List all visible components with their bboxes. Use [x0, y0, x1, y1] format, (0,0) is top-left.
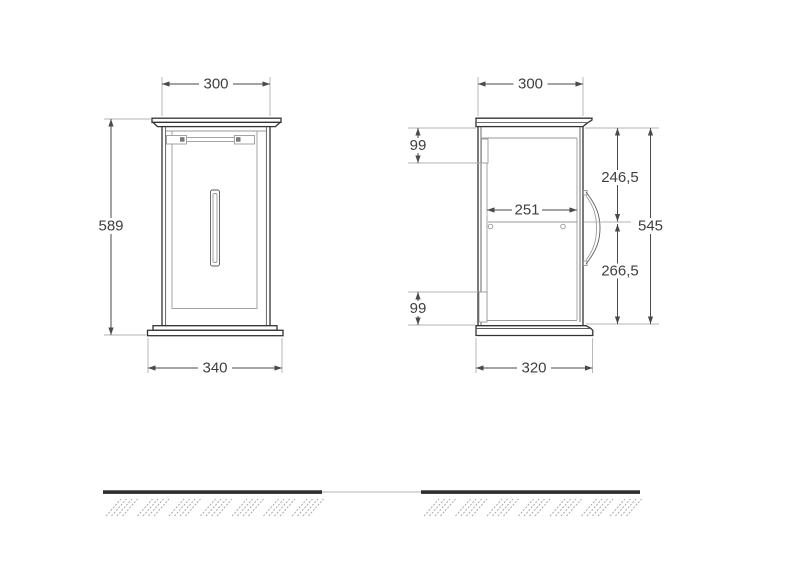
- side-body: [478, 127, 583, 326]
- dim-top-to-shelf-label: 246,5: [601, 169, 639, 186]
- hanging-bracket-right-screw: [236, 137, 241, 142]
- dim-side-depth-label: 300: [518, 76, 543, 93]
- dim-arrow: [275, 365, 283, 370]
- dim-arrow: [415, 318, 420, 326]
- dim-arrow: [585, 365, 593, 370]
- dim-arrow: [648, 317, 653, 325]
- front-view: [148, 118, 284, 335]
- dim-arrow: [615, 214, 620, 222]
- dim-arrow: [162, 81, 170, 86]
- dim-front-height-label: 589: [98, 218, 123, 235]
- hanging-bracket-left-screw: [180, 137, 185, 142]
- dim-hang-top-label: 99: [410, 137, 427, 154]
- dim-front-width-label: 300: [203, 76, 228, 93]
- dim-arrow: [415, 292, 420, 300]
- cabinet-drawing: 300 589 340: [0, 0, 800, 581]
- dim-shelf-to-bottom-label: 266,5: [601, 263, 639, 280]
- dim-arrow: [576, 81, 584, 86]
- side-hang-rail-top: [482, 139, 489, 163]
- front-body: [162, 127, 270, 326]
- dim-arrow: [615, 128, 620, 136]
- shelf-pin-right: [561, 224, 566, 229]
- dim-arrow: [478, 81, 486, 86]
- ground-hatch-left: [106, 499, 324, 516]
- dim-side-base-depth-label: 320: [521, 360, 546, 377]
- dim-arrow: [476, 365, 484, 370]
- ground-hatch-right: [424, 499, 642, 516]
- dim-front-base-width-label: 340: [202, 360, 227, 377]
- dim-arrow: [263, 81, 271, 86]
- dim-side-height-label: 545: [638, 218, 663, 235]
- dim-arrow: [148, 365, 156, 370]
- ground-line-right: [421, 490, 640, 494]
- dim-hang-bottom-label: 99: [410, 300, 427, 317]
- dim-arrow: [648, 128, 653, 136]
- dim-arrow: [415, 156, 420, 164]
- ground-line-left: [103, 490, 322, 494]
- dim-shelf-depth-label: 251: [514, 202, 539, 219]
- technical-drawing-canvas: 300 589 340: [0, 0, 800, 581]
- dim-arrow: [615, 224, 620, 232]
- side-base: [476, 326, 593, 336]
- dim-arrow: [108, 119, 113, 127]
- dim-arrow: [615, 317, 620, 325]
- side-view: [476, 118, 600, 335]
- shelf-pin-left: [488, 224, 493, 229]
- ground: [103, 490, 642, 516]
- dim-arrow: [415, 128, 420, 136]
- front-base-upper: [153, 326, 277, 331]
- side-handle-outer: [586, 192, 600, 264]
- side-hang-rail-bottom: [479, 292, 487, 322]
- front-base-lower: [148, 330, 284, 335]
- dim-arrow: [108, 328, 113, 336]
